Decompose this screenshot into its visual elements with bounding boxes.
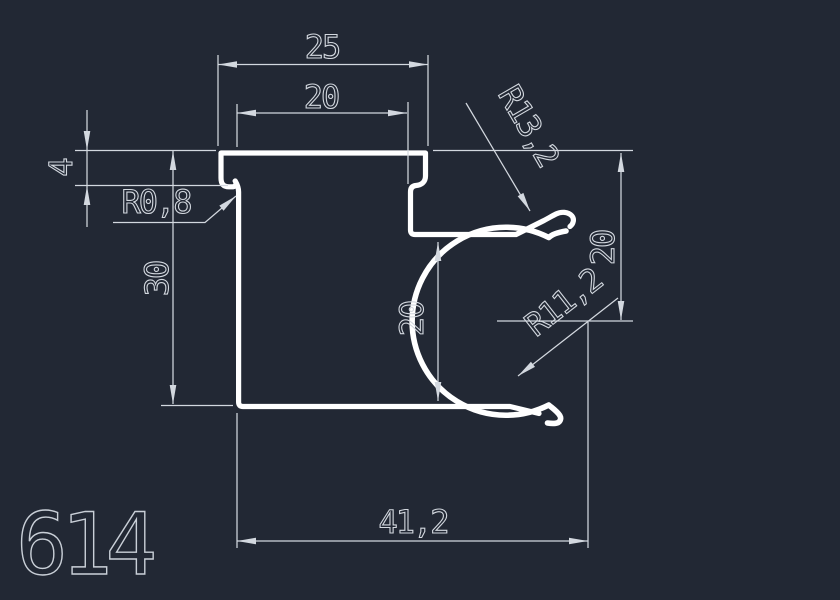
cad-drawing-viewport: 25 20 4 30 20 20 41,2 R0,8 R13,2 R11,2 6… — [0, 0, 840, 600]
dim-label-right-depth: 20 — [584, 230, 622, 265]
dim-label-bottom-width: 41,2 — [378, 503, 447, 541]
dim-label-mid-depth: 20 — [393, 301, 431, 336]
dim-label-inner-width: 20 — [304, 78, 339, 116]
cad-drawing-canvas: 25 20 4 30 20 20 41,2 R0,8 R13,2 R11,2 6… — [0, 0, 840, 600]
dim-label-lip-height: 4 — [42, 159, 80, 177]
dim-label-top-width: 25 — [305, 28, 340, 66]
part-number-label: 614 — [16, 495, 154, 595]
dim-label-left-height: 30 — [138, 261, 176, 296]
dim-label-lip-radius: R0,8 — [121, 183, 191, 221]
